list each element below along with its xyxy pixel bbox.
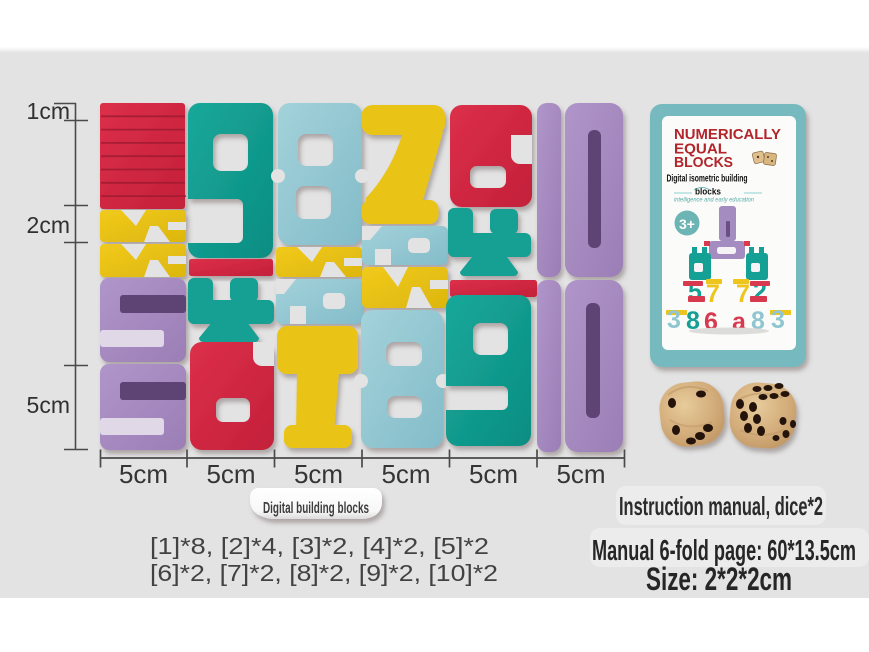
svg-text:1cm: 1cm	[27, 98, 70, 124]
svg-text:5cm: 5cm	[27, 392, 70, 418]
svg-text:2cm: 2cm	[27, 212, 70, 238]
svg-text:BLOCKS: BLOCKS	[674, 154, 733, 171]
svg-text:[6]*2, [7]*2, [8]*2, [9]*2, [1: [6]*2, [7]*2, [8]*2, [9]*2, [10]*2	[150, 560, 498, 586]
svg-text:Size: 2*2*2cm: Size: 2*2*2cm	[646, 561, 792, 597]
svg-text:Digital building blocks: Digital building blocks	[263, 500, 369, 517]
svg-text:[1]*8, [2]*4, [3]*2, [4]*2, [5: [1]*8, [2]*4, [3]*2, [4]*2, [5]*2	[150, 533, 489, 559]
svg-text:3: 3	[667, 306, 681, 334]
svg-text:Digital isometric building: Digital isometric building	[667, 174, 748, 185]
svg-text:5cm: 5cm	[294, 459, 343, 489]
svg-text:7: 7	[706, 280, 720, 308]
svg-text:5cm: 5cm	[469, 459, 518, 489]
svg-text:3: 3	[771, 306, 785, 334]
svg-text:5cm: 5cm	[556, 459, 605, 489]
svg-text:5cm: 5cm	[119, 459, 168, 489]
svg-text:5cm: 5cm	[381, 459, 430, 489]
svg-text:intelligence and early educati: intelligence and early education	[674, 197, 754, 204]
svg-text:7: 7	[736, 280, 750, 308]
svg-text:Instruction manual, dice*2: Instruction manual, dice*2	[619, 491, 823, 521]
svg-text:5cm: 5cm	[206, 459, 255, 489]
svg-text:3+: 3+	[679, 216, 695, 232]
